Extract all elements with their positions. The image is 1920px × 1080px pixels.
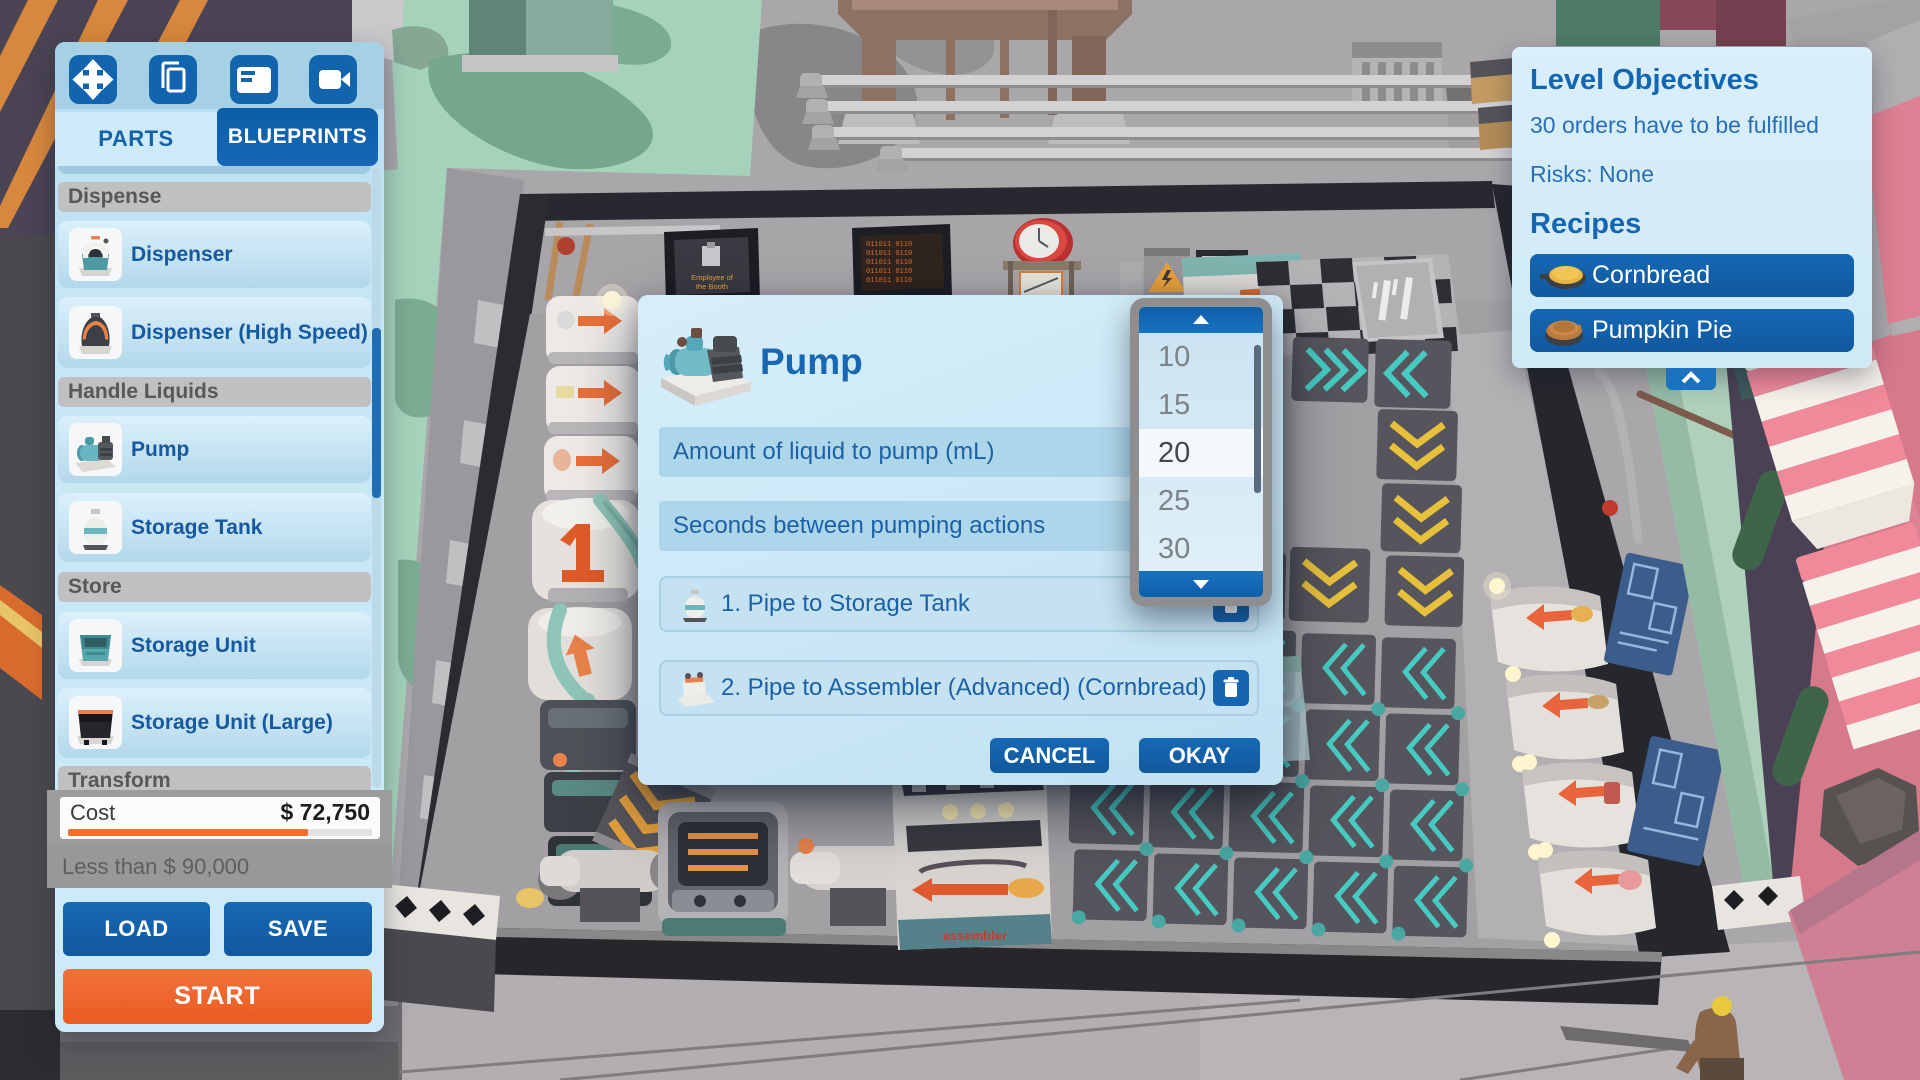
- svg-text:011011 0110: 011011 0110: [866, 250, 912, 258]
- svg-text:011011 0110: 011011 0110: [866, 241, 912, 249]
- svg-text:Employee of: Employee of: [691, 273, 734, 282]
- svg-text:011011 0110: 011011 0110: [866, 259, 912, 267]
- svg-text:011011 0110: 011011 0110: [866, 268, 912, 276]
- svg-text:assembler: assembler: [943, 928, 1007, 943]
- svg-text:011011 0110: 011011 0110: [866, 277, 912, 285]
- svg-text:the Booth: the Booth: [696, 282, 728, 291]
